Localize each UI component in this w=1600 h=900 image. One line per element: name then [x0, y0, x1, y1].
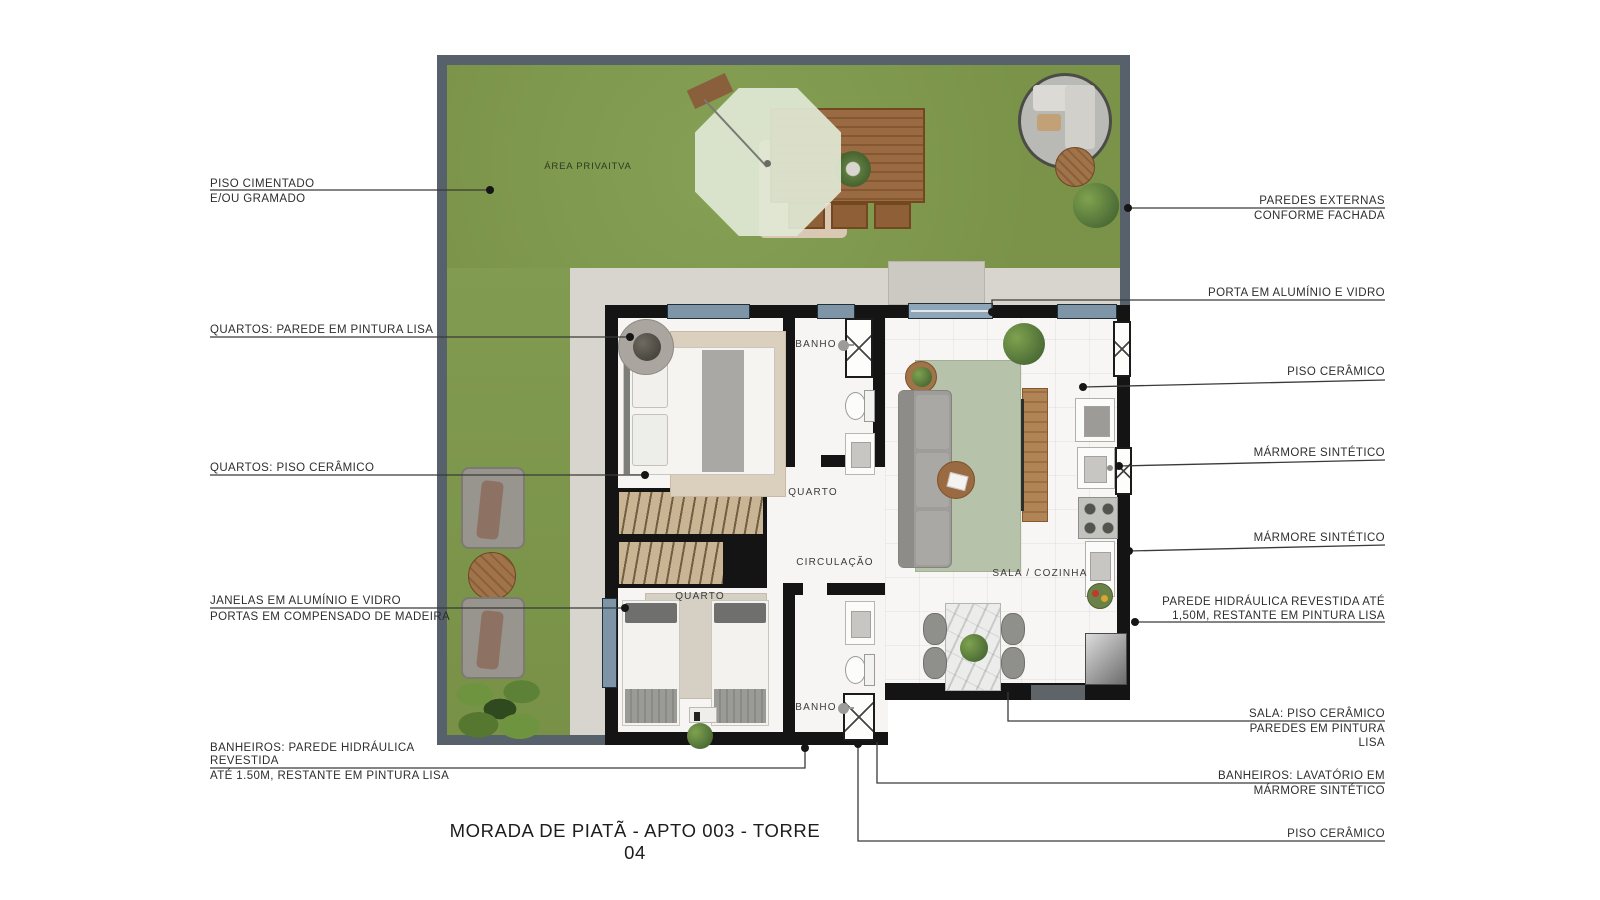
- annotation-porta-aluminio: PORTA EM ALUMÍNIO E VIDRO: [1208, 286, 1385, 300]
- patio-side-table: [1055, 147, 1095, 187]
- glass-entry-door: [908, 303, 993, 319]
- room-label-banho1: BANHO: [795, 339, 837, 350]
- annotation-banheiros-lavatorio-line1: BANHEIROS: LAVATÓRIO EM: [1218, 769, 1385, 783]
- sofa-cushion: [1037, 114, 1061, 131]
- annotation-piso-ceramico-2: PISO CERÂMICO: [1287, 827, 1385, 841]
- kitchen-sink: [1077, 447, 1115, 489]
- dining-chair: [923, 647, 947, 679]
- wall-bottom-sala: [885, 683, 1130, 700]
- kitchen-top-window: [1057, 304, 1117, 319]
- garden-round-table: [468, 552, 516, 600]
- bed-blanket: [625, 689, 677, 723]
- bedroom2-window: [602, 598, 617, 688]
- single-bed: [622, 600, 680, 726]
- kitchen-side-window: [1113, 321, 1131, 377]
- annotation-sala-piso-line3: LISA: [1358, 736, 1385, 750]
- fruit-bowl: [1087, 583, 1113, 609]
- pillow: [714, 603, 766, 623]
- annotation-paredes-externas-line2: CONFORME FACHADA: [1254, 209, 1385, 223]
- bed-blanket: [714, 689, 766, 723]
- dining-chair: [1001, 613, 1025, 645]
- plant-side-table: [905, 361, 937, 393]
- toilet: [845, 653, 875, 685]
- annotation-piso-cimentado-line1: PISO CIMENTADO: [210, 177, 314, 191]
- area-privativa-label: ÁREA PRIVAITVA: [544, 161, 631, 172]
- room-label-quarto1: QUARTO: [788, 487, 838, 498]
- room-label-sala: SALA / COZINHA: [992, 568, 1087, 579]
- plant: [1003, 323, 1045, 365]
- concrete-path: [570, 268, 1120, 305]
- kitchen-side-window: [1115, 447, 1132, 495]
- annotation-marmore-2: MÁRMORE SINTÉTICO: [1254, 531, 1385, 545]
- garden-lounger: [461, 467, 525, 549]
- wall-bath2-top: [795, 583, 803, 595]
- annotation-janelas-line1: JANELAS EM ALUMÍNIO E VIDRO: [210, 594, 401, 608]
- garden-plant: [1073, 183, 1119, 228]
- room-label-circulacao: CIRCULAÇÃO: [796, 557, 874, 568]
- room-label-quarto2: QUARTO: [675, 591, 725, 602]
- annotation-janelas-line2: PORTAS EM COMPENSADO DE MADEIRA: [210, 610, 450, 624]
- outdoor-sofa: [1065, 85, 1095, 149]
- faucet-dot: [1107, 465, 1113, 471]
- garden-lounger: [461, 597, 525, 679]
- wardrobe: [619, 542, 723, 584]
- annotation-sala-piso-line1: SALA: PISO CERÂMICO: [1249, 707, 1385, 721]
- bed-runner: [702, 350, 744, 472]
- notch-cover: [885, 700, 1130, 745]
- annotation-banheiros-line2: REVESTIDA: [210, 754, 279, 768]
- refrigerator: [1085, 633, 1127, 685]
- garden-chair: [874, 203, 911, 229]
- plant: [633, 333, 661, 361]
- coffee-table: [937, 461, 975, 499]
- dining-chair: [1001, 647, 1025, 679]
- annotation-marmore-1: MÁRMORE SINTÉTICO: [1254, 446, 1385, 460]
- floor-plan-page: ÁREA PRIVAITVA BANHO QUARTO CIRCULAÇÃO Q…: [0, 0, 1600, 900]
- annotation-banheiros-line1: BANHEIROS: PAREDE HIDRÁULICA: [210, 741, 415, 755]
- annotation-quartos-piso: QUARTOS: PISO CERÂMICO: [210, 461, 374, 475]
- faucet-icon: [838, 340, 849, 351]
- wall-bath2-top: [827, 583, 885, 595]
- pillow: [625, 603, 677, 623]
- magazine: [946, 472, 968, 491]
- lounger-cushion: [476, 610, 504, 670]
- shower-box: [845, 318, 873, 378]
- wardrobe: [619, 492, 763, 534]
- annotation-banheiros-line3: ATÉ 1.50M, RESTANTE EM PINTURA LISA: [210, 769, 449, 783]
- annotation-paredes-externas-line1: PAREDES EXTERNAS: [1259, 194, 1385, 208]
- bedroom1-window: [667, 304, 750, 319]
- annotation-banheiros-lavatorio-line2: MÁRMORE SINTÉTICO: [1254, 784, 1385, 798]
- single-bed: [711, 600, 769, 726]
- annotation-quartos-parede: QUARTOS: PAREDE EM PINTURA LISA: [210, 323, 433, 337]
- bathroom-sink: [845, 601, 875, 645]
- annotation-piso-cimentado-line2: E/OU GRAMADO: [210, 192, 306, 206]
- toilet: [845, 389, 875, 421]
- lounger-cushion: [476, 480, 504, 540]
- parasol-hub: [764, 160, 771, 167]
- plant: [687, 723, 713, 749]
- concrete-path: [570, 305, 605, 735]
- floor-plan-image: [437, 55, 1130, 745]
- annotation-piso-ceramico-1: PISO CERÂMICO: [1287, 365, 1385, 379]
- bathroom-sink: [845, 433, 875, 475]
- annotation-parede-hidraulica-line1: PAREDE HIDRÁULICA REVESTIDA ATÉ: [1162, 595, 1385, 609]
- wall-bedroom2-bath: [783, 583, 795, 745]
- entry-porch: [888, 261, 985, 305]
- plant: [912, 367, 932, 387]
- nightstand: [689, 707, 717, 723]
- page-title: MORADA DE PIATÃ - APTO 003 - TORRE 04: [440, 820, 830, 864]
- dining-chair: [923, 613, 947, 645]
- laundry-tank: [1075, 398, 1115, 442]
- garden-fern-plant: [455, 673, 545, 745]
- bedside-table: [618, 319, 674, 375]
- pillow: [632, 414, 668, 466]
- tv-rack: [1022, 388, 1048, 522]
- seat-cushion: [916, 395, 949, 449]
- faucet-icon: [838, 703, 849, 714]
- annotation-sala-piso-line2: PAREDES EM PINTURA: [1250, 722, 1385, 736]
- garden-chair: [831, 203, 868, 229]
- room-label-banho2: BANHO: [795, 702, 837, 713]
- shower-box: [843, 693, 875, 741]
- tv: [1021, 399, 1024, 511]
- stove: [1078, 497, 1118, 539]
- seat-cushion: [916, 511, 949, 565]
- dining-table: [945, 603, 1001, 691]
- centerpiece-plant: [960, 634, 988, 662]
- bathroom1-window: [817, 304, 855, 319]
- phone: [694, 712, 700, 721]
- door-mat: [1031, 685, 1085, 700]
- annotation-parede-hidraulica-line2: 1,50M, RESTANTE EM PINTURA LISA: [1172, 609, 1385, 623]
